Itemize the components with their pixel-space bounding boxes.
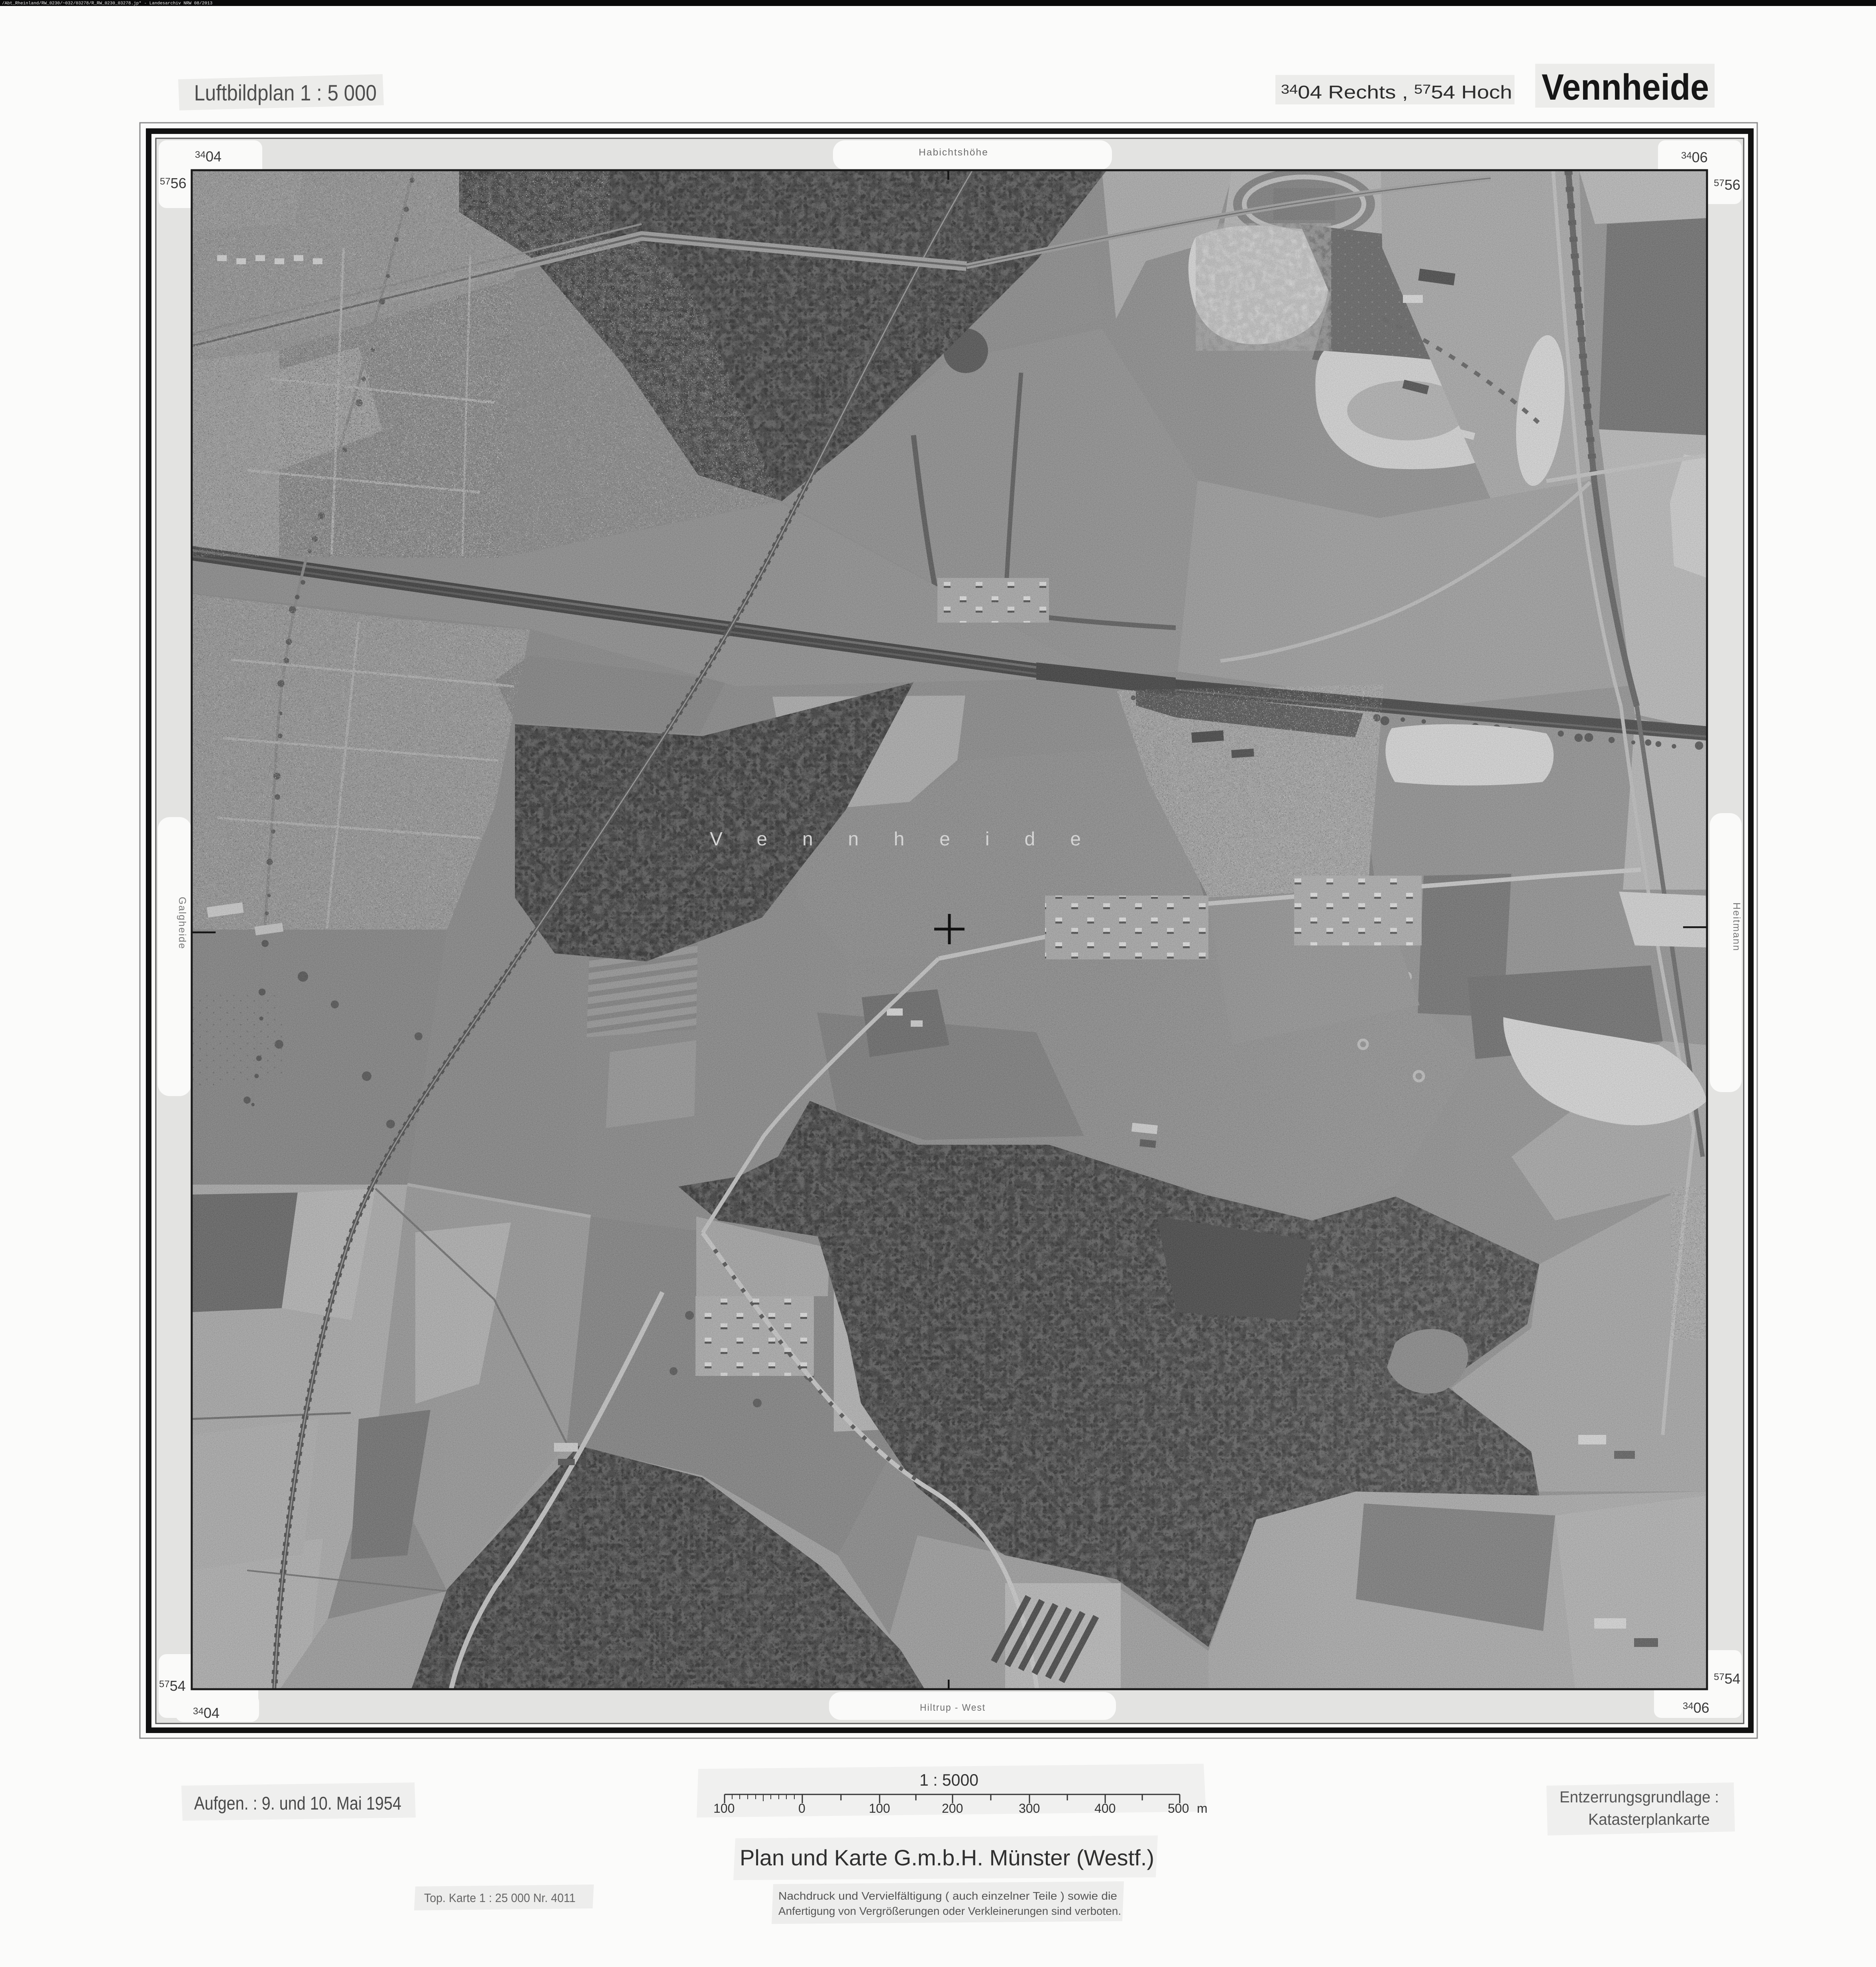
svg-text:m: m: [1197, 1801, 1208, 1816]
svg-text:Galgheide: Galgheide: [177, 897, 188, 949]
svg-text:Hiltrup - West: Hiltrup - West: [920, 1702, 986, 1713]
svg-text:Heitmann: Heitmann: [1731, 902, 1742, 951]
svg-text:500: 500: [1168, 1801, 1189, 1816]
svg-text:Anfertigung von Vergrößerungen: Anfertigung von Vergrößerungen oder Verk…: [778, 1905, 1121, 1917]
svg-text:300: 300: [1019, 1801, 1040, 1816]
svg-text:Luftbildplan 1 : 5 000: Luftbildplan 1 : 5 000: [194, 80, 377, 105]
svg-text:Nachdruck und Vervielfältigung: Nachdruck und Vervielfältigung ( auch ei…: [778, 1890, 1117, 1902]
svg-text:Top. Karte 1 : 25 000 Nr. 401: Top. Karte 1 : 25 000 Nr. 4011: [424, 1891, 576, 1905]
svg-text:Habichtshöhe: Habichtshöhe: [919, 147, 988, 158]
svg-text:400: 400: [1094, 1801, 1116, 1816]
svg-text:Vennheide: Vennheide: [1542, 67, 1709, 108]
svg-text:0: 0: [798, 1801, 805, 1816]
svg-text:200: 200: [942, 1801, 963, 1816]
svg-text:Katasterplankarte: Katasterplankarte: [1588, 1811, 1710, 1828]
svg-text:Entzerrungsgrundlage :: Entzerrungsgrundlage :: [1560, 1788, 1719, 1806]
svg-text:100: 100: [869, 1801, 890, 1816]
svg-text:/Abt_Rheinland/RW_0230/~032/03: /Abt_Rheinland/RW_0230/~032/03278/R_RW_0…: [2, 1, 212, 6]
svg-text:100: 100: [713, 1801, 735, 1816]
svg-text:Aufgen. : 9. und 10. Mai 1954: Aufgen. : 9. und 10. Mai 1954: [194, 1793, 401, 1814]
svg-text:Plan und Karte G.m.b.H. Münst: Plan und Karte G.m.b.H. Münster (Westf.): [740, 1845, 1154, 1870]
svg-text:1 : 5000: 1 : 5000: [919, 1770, 978, 1789]
svg-text:3404 Rechts , 5754 Hoch: 3404 Rechts , 5754 Hoch: [1281, 82, 1512, 102]
